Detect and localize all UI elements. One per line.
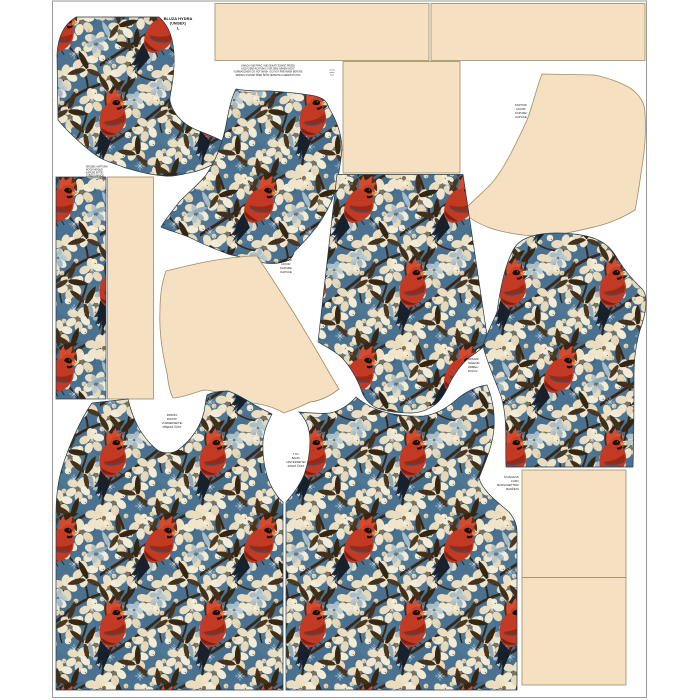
- svg-text:KAPUCE: KAPUCE: [515, 115, 527, 119]
- svg-text:USZYCIEM! ACHTUNG! VOR DEM NÄH: USZYCIEM! ACHTUNG! VOR DEM NÄHEN NICHT: [241, 68, 295, 71]
- svg-text:KAPUZE MITTE/: KAPUZE MITTE/: [86, 172, 104, 175]
- svg-text:(UNISEX): (UNISEX): [170, 22, 187, 26]
- svg-text:RUKÁV: RUKÁV: [468, 369, 478, 373]
- svg-text:BLUZA HYDRA: BLUZA HYDRA: [164, 16, 193, 21]
- svg-text:UWAGA! NIE PRAĆ I NIE DEKATYZO: UWAGA! NIE PRAĆ I NIE DEKATYZOWAĆ PRZED: [241, 65, 295, 68]
- svg-text:VORWASCHEN! DO NOT WASH / DO N: VORWASCHEN! DO NOT WASH / DO NOT PRE-WAS…: [234, 71, 303, 74]
- svg-text:ŚRODEK KAPTURA/: ŚRODEK KAPTURA/: [86, 166, 108, 169]
- svg-text:MANŽETA: MANŽETA: [506, 486, 519, 491]
- svg-text:ZADNÍ ČÁST: ZADNÍ ČÁST: [288, 463, 305, 468]
- svg-text:STŘED KAPUCE: STŘED KAPUCE: [86, 175, 104, 178]
- svg-text:HOOD MIDDLE/: HOOD MIDDLE/: [86, 170, 103, 172]
- svg-text:KAPUCE: KAPUCE: [280, 270, 292, 274]
- svg-text:PŘEDNÍ ČÁST: PŘEDNÍ ČÁST: [163, 424, 182, 429]
- svg-text:SEWING! POZOR! PŘED ŠITÍM NEPE: SEWING! POZOR! PŘED ŠITÍM NEPERTE A NEDE…: [235, 74, 300, 77]
- svg-text:tkani: tkani: [330, 74, 335, 77]
